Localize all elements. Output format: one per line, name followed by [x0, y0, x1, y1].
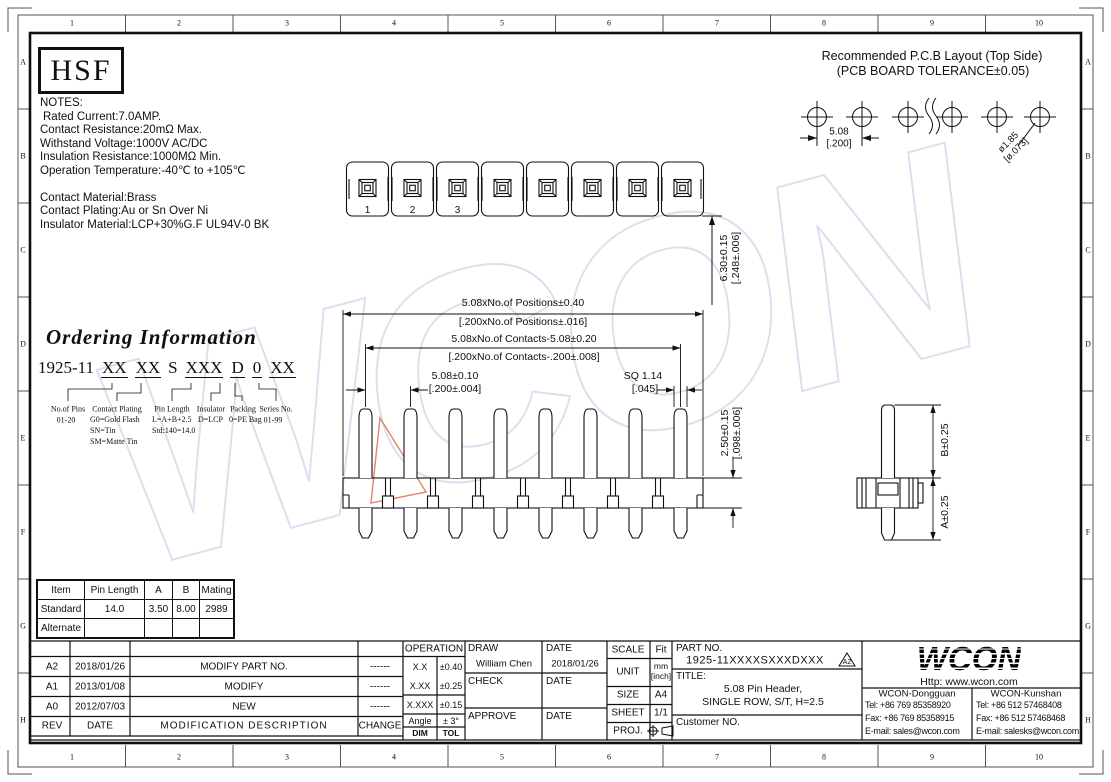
b-dim-label: B±0.25 — [939, 423, 951, 456]
pcb-layout-title: Recommended P.C.B Layout (Top Side) — [822, 49, 1043, 63]
office-name: WCON-Kunshan — [991, 690, 1062, 701]
tol-footer: DIM — [412, 729, 428, 739]
rev-header: CHANGE — [359, 720, 402, 732]
unit-inch: [inch] — [651, 672, 671, 682]
callout-label: Insulator — [197, 404, 225, 413]
draw-date-label: DATE — [546, 643, 572, 655]
corner-mark — [8, 750, 32, 774]
sq-dim-inch: [.045] — [632, 383, 658, 395]
zone-number: 5 — [500, 18, 504, 27]
check-label: CHECK — [468, 676, 503, 688]
zone-letter: H — [20, 715, 26, 724]
zone-number: 9 — [930, 752, 934, 761]
zone-number: 10 — [1035, 18, 1043, 27]
spec-row-standard: Standard 14.0 3.50 8.00 2989 — [37, 600, 234, 619]
contacts-dim: 5.08xNo.of Contacts-5.08±0.20 — [451, 333, 596, 345]
zone-number: 4 — [392, 18, 396, 27]
spec-cell: 8.00 — [173, 600, 200, 619]
spec-header: B — [173, 580, 200, 600]
spec-cell — [200, 619, 235, 639]
callout-value: Std:140=14.0 — [152, 426, 195, 435]
zone-number: 6 — [607, 18, 611, 27]
connector-top-view: 1 2 3 — [335, 155, 720, 225]
svg-text:A2: A2 — [843, 659, 852, 666]
callout-label: Contact Plating — [92, 404, 142, 413]
pcb-hole — [981, 101, 1013, 133]
zone-number: 8 — [822, 18, 826, 27]
approve-label: APPROVE — [468, 711, 516, 723]
callout-value: G0=Gold Flash — [90, 415, 140, 424]
zone-number: 3 — [285, 752, 289, 761]
zone-letter: G — [20, 621, 26, 630]
check-date-label: DATE — [546, 676, 572, 688]
callout-value: SM=Matte Tin — [90, 437, 137, 446]
tol-dim: Angle — [408, 715, 431, 725]
rev-desc: MODIFY — [225, 681, 264, 693]
spec-table: Item Pin Length A B Mating Standard 14.0… — [36, 579, 235, 639]
zone-letter: G — [1085, 621, 1091, 630]
tol-val: ±0.40 — [440, 661, 462, 671]
tol-val: ±0.15 — [440, 699, 462, 709]
zone-letter: A — [1085, 57, 1091, 66]
rev-header: DATE — [87, 720, 113, 732]
spec-cell — [145, 619, 173, 639]
zone-number: 7 — [715, 752, 719, 761]
rev-id: A1 — [46, 681, 58, 693]
corner-mark — [1079, 8, 1103, 32]
size-value: A4 — [655, 689, 667, 701]
office-email: E-mail: sales@wcon.com — [865, 726, 960, 736]
rev-change: ------ — [370, 661, 390, 673]
rev-desc: MODIFY PART NO. — [200, 661, 288, 673]
callout-value: 01-99 — [264, 415, 283, 424]
front-view-pins — [359, 409, 687, 538]
callout-label: Series No. — [259, 404, 292, 413]
spec-header: A — [145, 580, 173, 600]
title-label: TITLE: — [676, 671, 706, 683]
rev-desc: NEW — [232, 701, 255, 713]
spec-cell: 14.0 — [85, 600, 145, 619]
approve-date-label: DATE — [546, 711, 572, 723]
rev-date: 2013/01/08 — [75, 681, 125, 693]
zone-letter: F — [21, 527, 25, 536]
spec-cell: 3.50 — [145, 600, 173, 619]
standoff-dim-label: 2.50±0.15[.098±.006] — [719, 407, 743, 459]
pin-numbers: 1 2 3 — [365, 205, 461, 216]
draw-label: DRAW — [468, 643, 498, 655]
sheet-value: 1/1 — [654, 707, 668, 719]
drawing-sheet: WCON 1 2 3 4 5 6 7 8 9 10 1 2 3 — [0, 0, 1111, 782]
pitch-dim-inch: [.200±.004] — [429, 383, 481, 395]
zone-number: 5 — [500, 752, 504, 761]
spec-cell — [173, 619, 200, 639]
callout-value: 0=PE Bag — [229, 415, 262, 424]
spec-cell: Standard — [37, 600, 85, 619]
office-email: E-mail: salesks@wcon.com — [976, 726, 1079, 736]
zone-number: 1 — [70, 752, 74, 761]
zone-letter: E — [1086, 433, 1091, 442]
tol-dim: X.XX — [410, 681, 431, 691]
zone-letter: D — [1085, 339, 1091, 348]
zone-letter: E — [21, 433, 26, 442]
rev-change: ------ — [370, 701, 390, 713]
zone-letter: F — [1086, 527, 1090, 536]
pcb-hole — [936, 101, 968, 133]
pitch-dim: 5.08±0.10 — [432, 370, 479, 382]
svg-text:1: 1 — [365, 205, 371, 216]
positions-dim: 5.08xNo.of Positions±0.40 — [462, 297, 585, 309]
positions-dim-inch: [.200xNo.of Positions±.016] — [459, 316, 587, 328]
callout-label: No.of Pins — [51, 404, 85, 413]
spec-header-row: Item Pin Length A B Mating — [37, 580, 234, 600]
break-symbol — [926, 98, 940, 134]
tol-dim: X.X — [413, 661, 428, 671]
connector-front-view — [330, 290, 770, 552]
rev-header: REV — [42, 720, 63, 732]
spec-row-alternate: Alternate — [37, 619, 234, 639]
part-no-label: PART NO. — [676, 643, 722, 655]
front-view-body — [343, 478, 703, 508]
rev-date: 2012/07/03 — [75, 701, 125, 713]
pcb-pitch-value: 5.08 — [829, 126, 848, 138]
pcb-pitch-inch: [.200] — [826, 138, 851, 150]
pcb-hole — [892, 101, 924, 133]
rev-id: A0 — [46, 701, 58, 713]
ordering-leaders — [0, 0, 300, 410]
rev-flag-triangle-icon: A2 — [838, 652, 856, 668]
tolerance-header: OPERATION — [405, 643, 463, 655]
callout-value: L=A+B+2.5 — [152, 415, 192, 424]
side-view-dimension-lines — [892, 405, 942, 540]
proj-label: PROJ. — [613, 725, 642, 737]
callout-value: 01-20 — [57, 415, 76, 424]
spec-cell: Alternate — [37, 619, 85, 639]
callout-value: D=LCP — [198, 415, 223, 424]
top-view-segments — [347, 162, 704, 216]
part-no-value: 1925-11XXXXSXXXDXXX — [686, 655, 824, 668]
drawer-name: William Chen — [476, 660, 532, 671]
corner-mark — [1079, 750, 1103, 774]
tol-val: ± 3° — [443, 715, 459, 725]
office-tel: Tel: +86 769 85358920 — [865, 700, 951, 710]
svg-text:2: 2 — [410, 205, 416, 216]
tol-val: ±0.25 — [440, 681, 462, 691]
wcon-logo: WCON — [917, 640, 1021, 677]
company-website: Http: www.wcon.com — [920, 676, 1017, 688]
zone-number: 8 — [822, 752, 826, 761]
office-fax: Fax: +86 769 85358915 — [865, 713, 954, 723]
rev-header: MODIFICATION DESCRIPTION — [160, 720, 327, 732]
a-dim-label: A±0.25 — [939, 495, 951, 528]
zone-number: 6 — [607, 752, 611, 761]
svg-text:3: 3 — [455, 205, 461, 216]
pcb-hole — [1024, 101, 1056, 133]
office-fax: Fax: +86 512 57468468 — [976, 713, 1065, 723]
size-label: SIZE — [617, 689, 639, 701]
part-title-line1: 5.08 Pin Header, — [724, 683, 802, 695]
office-tel: Tel: +86 512 57468408 — [976, 700, 1062, 710]
side-view-pin — [878, 405, 898, 540]
sheet-label: SHEET — [611, 707, 644, 719]
scale-label: SCALE — [612, 644, 645, 656]
pcb-layout-tolerance: (PCB BOARD TOLERANCE±0.05) — [837, 64, 1030, 78]
customer-no-label: Customer NO. — [676, 717, 740, 729]
part-title-line2: SINGLE ROW, S/T, H=2.5 — [702, 696, 824, 708]
callout-value: SN=Tin — [90, 426, 116, 435]
watermark-triangle — [371, 418, 426, 503]
tol-footer: TOL — [443, 729, 460, 739]
zone-number: 10 — [1035, 752, 1043, 761]
connector-side-view — [845, 395, 965, 553]
draw-date: 2018/01/26 — [551, 660, 599, 671]
rev-change: ------ — [370, 681, 390, 693]
callout-label: Packing — [230, 404, 256, 413]
rev-date: 2018/01/26 — [75, 661, 125, 673]
spec-header: Mating — [200, 580, 235, 600]
third-angle-projection-icon — [647, 724, 675, 738]
zone-letter: C — [1085, 245, 1090, 254]
office-name: WCON-Dongguan — [878, 690, 955, 701]
spec-header: Item — [37, 580, 85, 600]
height-dim-label: 6.30±0.15[.248±.006] — [718, 232, 742, 284]
tol-dim: X.XXX — [407, 699, 434, 709]
zone-number: 9 — [930, 18, 934, 27]
sq-dim: SQ 1.14 — [624, 370, 663, 382]
spec-cell: 2989 — [200, 600, 235, 619]
scale-value: Fit — [655, 644, 666, 656]
contacts-dim-inch: [.200xNo.of Contacts-.200±.008] — [448, 351, 599, 363]
zone-letter: H — [1085, 715, 1091, 724]
spec-cell — [85, 619, 145, 639]
callout-label: Pin Length — [154, 404, 189, 413]
top-view-pin-holes — [359, 180, 691, 197]
zone-number: 4 — [392, 752, 396, 761]
unit-label: UNIT — [616, 666, 639, 678]
zone-number: 2 — [177, 752, 181, 761]
rev-id: A2 — [46, 661, 58, 673]
spec-header: Pin Length — [85, 580, 145, 600]
zone-number: 7 — [715, 18, 719, 27]
